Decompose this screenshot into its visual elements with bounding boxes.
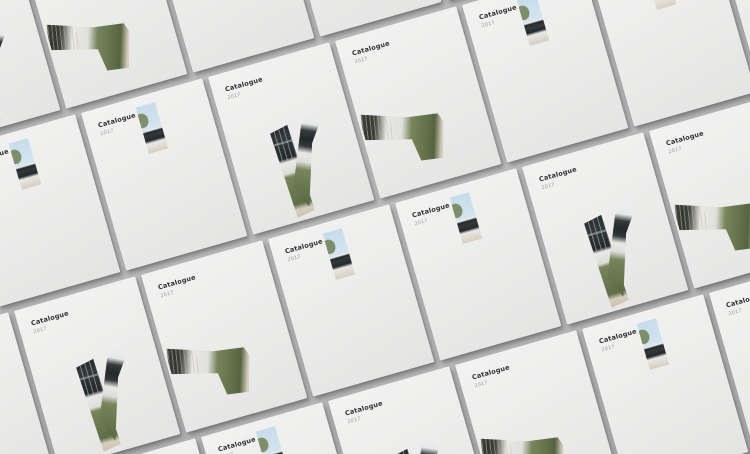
cover-text-block: Catalogue2017 xyxy=(471,363,513,389)
cover-text-block: Catalogue2017 xyxy=(97,111,139,137)
cover-text-block: Catalogue2017 xyxy=(351,39,393,65)
photo-strip-cutout xyxy=(517,0,549,46)
cover-text-block: Catalogue2017 xyxy=(538,165,580,191)
cover-text-block: Catalogue2017 xyxy=(478,3,520,29)
logo-flag-cutout xyxy=(358,91,453,176)
photo-strip-cutout xyxy=(644,0,676,10)
photo-strip-cutout xyxy=(450,192,482,244)
cover-text-block: Catalogue2017 xyxy=(725,291,750,317)
photo-strip-cutout xyxy=(9,138,41,190)
cover-text-block: Catalogue2017 xyxy=(224,75,266,101)
photo-strip-cutout xyxy=(256,426,288,454)
cover-text-block: Catalogue2017 xyxy=(30,309,72,335)
logo-flag-cutout xyxy=(672,181,750,266)
cover-text-block: Catalogue2017 xyxy=(665,129,707,155)
catalogue-year: 2017 xyxy=(0,156,12,172)
logo-flag-cutout xyxy=(164,325,259,410)
cover-text-block: Catalogue2017 xyxy=(598,327,640,353)
cover-text-block: Catalogue2017 xyxy=(157,273,199,299)
cover-text-block: Catalogue2017 xyxy=(284,237,326,263)
logo-flag-cutout xyxy=(478,415,573,454)
photo-strip-cutout xyxy=(136,102,168,154)
logo-flag-cutout xyxy=(44,1,139,86)
catalogue-mockup-scene: Catalogue2017Catalogue2017Catalogue2017C… xyxy=(0,0,750,454)
photo-strip-cutout xyxy=(323,228,355,280)
logo-check-arm-cutout xyxy=(0,17,29,129)
photo-strip-cutout xyxy=(637,318,669,370)
cover-text-block: Catalogue2017 xyxy=(217,435,259,454)
cover-text-block: Catalogue2017 xyxy=(344,399,386,425)
cover-text-block: Catalogue2017 xyxy=(411,201,453,227)
